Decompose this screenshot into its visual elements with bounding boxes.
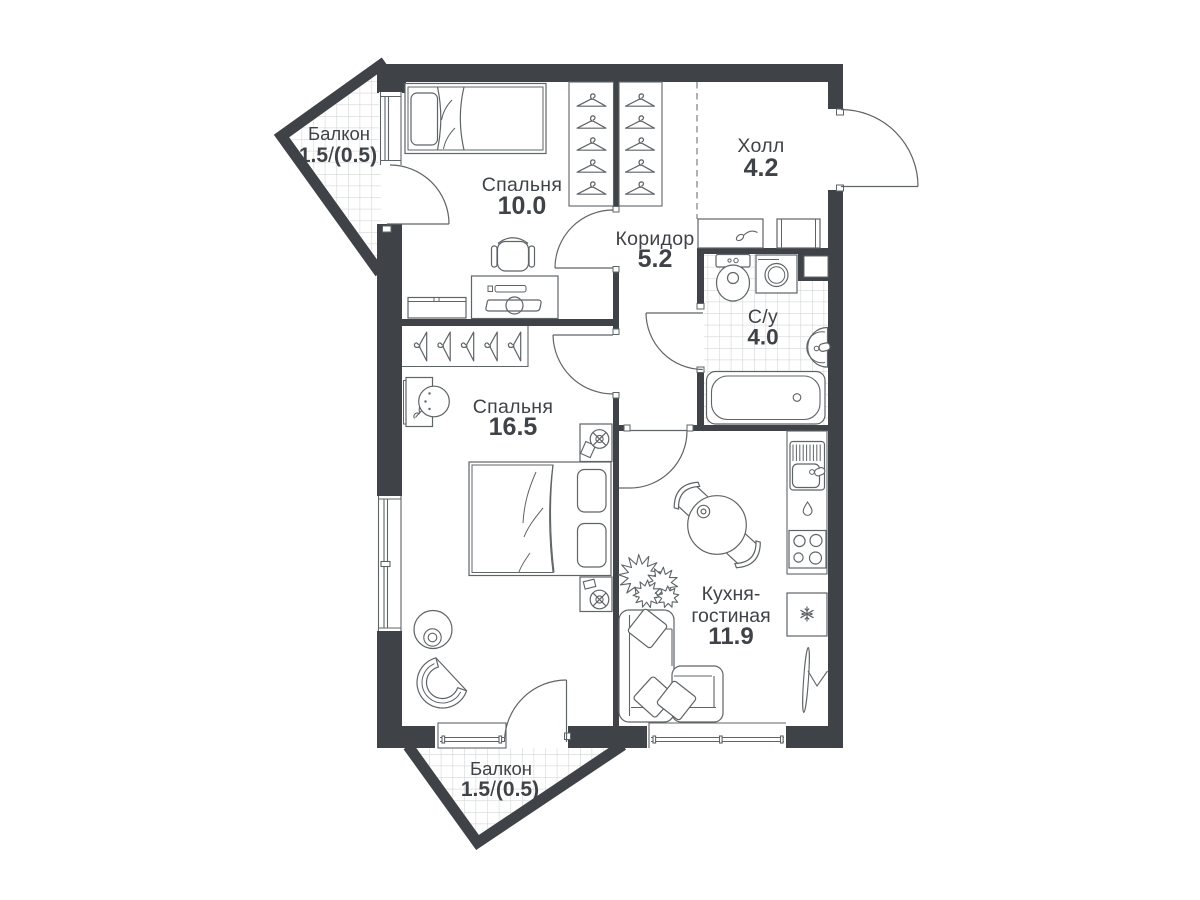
svg-text:Балкон: Балкон <box>470 758 532 779</box>
svg-text:4.2: 4.2 <box>744 154 779 182</box>
svg-text:11.9: 11.9 <box>708 623 753 650</box>
svg-text:16.5: 16.5 <box>489 413 538 441</box>
svg-text:Балкон: Балкон <box>308 123 370 144</box>
svg-text:5.2: 5.2 <box>638 245 673 273</box>
svg-text:4.0: 4.0 <box>747 325 778 350</box>
svg-text:1.5/(0.5): 1.5/(0.5) <box>299 144 377 167</box>
svg-text:10.0: 10.0 <box>498 192 547 220</box>
svg-text:Кухня-: Кухня- <box>702 583 761 605</box>
svg-text:1.5/(0.5): 1.5/(0.5) <box>461 778 539 801</box>
